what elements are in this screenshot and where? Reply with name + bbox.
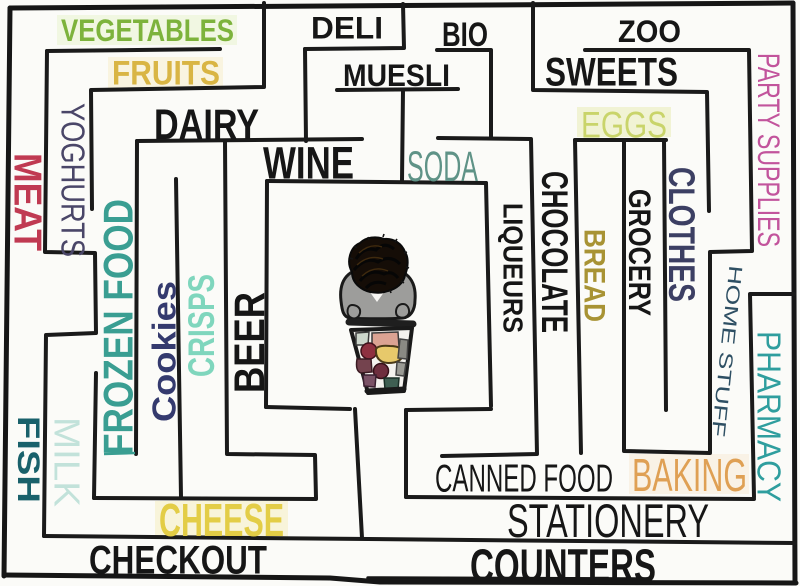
svg-text:BIO: BIO (442, 16, 488, 54)
svg-text:BREAD: BREAD (578, 229, 611, 322)
svg-text:EGGS: EGGS (581, 104, 667, 146)
svg-text:CHOCOLATE: CHOCOLATE (534, 171, 576, 333)
svg-text:WINE: WINE (263, 138, 354, 189)
svg-text:MILK: MILK (47, 417, 88, 507)
svg-text:FRUITS: FRUITS (112, 55, 220, 93)
svg-text:GROCERY: GROCERY (622, 189, 658, 316)
svg-text:LIQUEURS: LIQUEURS (498, 203, 529, 333)
svg-text:FROZEN FOOD: FROZEN FOOD (96, 199, 142, 455)
svg-text:DELI: DELI (311, 10, 383, 46)
svg-text:CLOTHES: CLOTHES (661, 167, 703, 302)
svg-text:YOGHURTS: YOGHURTS (55, 103, 92, 257)
svg-text:SODA: SODA (407, 143, 478, 191)
svg-text:MEAT: MEAT (6, 153, 49, 251)
svg-text:FISH: FISH (11, 416, 47, 503)
svg-text:PARTY SUPPLIES: PARTY SUPPLIES (751, 53, 787, 247)
svg-text:Cookies: Cookies (147, 281, 184, 422)
svg-text:MUESLI: MUESLI (343, 57, 450, 93)
svg-text:BAKING: BAKING (632, 449, 747, 501)
svg-text:COUNTERS: COUNTERS (470, 540, 656, 586)
svg-text:SWEETS: SWEETS (545, 51, 678, 95)
svg-text:CHECKOUT: CHECKOUT (89, 539, 267, 583)
svg-text:VEGETABLES: VEGETABLES (61, 12, 234, 48)
svg-text:ZOO: ZOO (618, 13, 681, 49)
svg-text:BEER: BEER (226, 292, 274, 393)
svg-text:PHARMACY: PHARMACY (751, 331, 788, 502)
svg-text:DAIRY: DAIRY (154, 101, 259, 149)
svg-text:CRISPS: CRISPS (180, 274, 222, 377)
